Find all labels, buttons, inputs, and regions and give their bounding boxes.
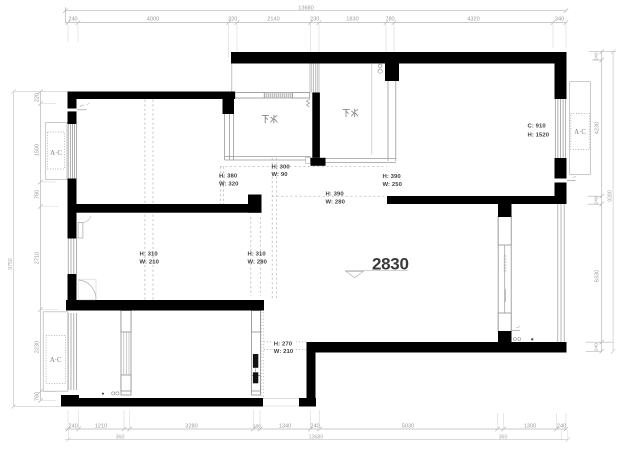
svg-text:W: 250: W: 250 [383, 182, 403, 188]
svg-text:A·C: A·C [50, 150, 62, 157]
svg-text:230: 230 [310, 17, 319, 23]
svg-text:780: 780 [385, 17, 394, 23]
svg-text:760: 760 [35, 190, 41, 199]
svg-text:2140: 2140 [267, 17, 279, 23]
svg-text:1830: 1830 [346, 17, 358, 23]
svg-text:9750: 9750 [8, 258, 14, 270]
svg-text:240: 240 [310, 423, 319, 429]
svg-text:240: 240 [594, 196, 600, 204]
svg-text:H: 310: H: 310 [140, 252, 159, 258]
svg-text:W: 280: W: 280 [248, 259, 268, 265]
svg-text:5030: 5030 [402, 423, 414, 429]
svg-text:W: 320: W: 320 [219, 181, 239, 187]
svg-text:360: 360 [116, 434, 125, 440]
svg-text:320: 320 [228, 17, 237, 23]
svg-text:C: 910: C: 910 [528, 123, 547, 129]
svg-text:W: 90: W: 90 [272, 172, 289, 178]
svg-text:1300: 1300 [524, 423, 536, 429]
svg-text:H: 390: H: 390 [326, 192, 345, 198]
svg-text:240: 240 [69, 423, 78, 429]
svg-text:H: 310: H: 310 [248, 252, 267, 258]
svg-text:9280: 9280 [607, 190, 613, 202]
svg-text:A·C: A·C [574, 129, 586, 136]
svg-text:2230: 2230 [35, 341, 41, 353]
svg-text:240: 240 [594, 52, 600, 60]
svg-text:4320: 4320 [467, 17, 479, 23]
svg-text:1210: 1210 [95, 423, 107, 429]
svg-text:W: 280: W: 280 [326, 200, 346, 206]
svg-text:240: 240 [68, 17, 77, 23]
svg-text:240: 240 [557, 423, 566, 429]
svg-text:340: 340 [555, 17, 564, 23]
svg-text:6330: 6330 [594, 270, 600, 282]
svg-text:A·C: A·C [50, 357, 62, 364]
svg-text:360: 360 [499, 434, 508, 440]
svg-text:H: 390: H: 390 [383, 174, 402, 180]
svg-text:2710: 2710 [35, 252, 41, 264]
svg-text:W: 210: W: 210 [274, 349, 294, 355]
svg-text:13680: 13680 [298, 5, 314, 11]
svg-text:H: 270: H: 270 [274, 341, 293, 347]
svg-text:H: 300: H: 300 [272, 164, 291, 170]
svg-text:13680: 13680 [309, 434, 324, 440]
svg-text:220: 220 [35, 93, 41, 102]
svg-text:180: 180 [253, 423, 261, 429]
svg-text:1340: 1340 [279, 423, 291, 429]
svg-text:3280: 3280 [185, 423, 197, 429]
svg-text:1500: 1500 [35, 144, 41, 156]
svg-text:W: 210: W: 210 [140, 259, 160, 265]
svg-text:4000: 4000 [147, 17, 159, 23]
svg-text:4230: 4230 [594, 122, 600, 134]
svg-text:H: 380: H: 380 [219, 174, 238, 180]
svg-text:240: 240 [594, 343, 600, 351]
svg-text:H: 1520: H: 1520 [528, 133, 550, 139]
svg-text:760: 760 [35, 392, 41, 401]
